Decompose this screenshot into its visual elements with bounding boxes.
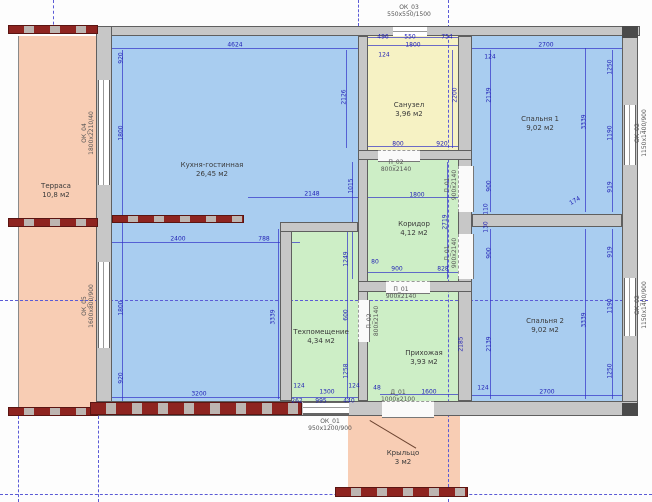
room-hallway [368,292,458,401]
masonry-terrace-top [8,25,98,34]
opening-label: ОК_051600х800/900 [82,284,96,328]
dimension-label: 262 [291,398,302,405]
room-label-bedroom2: Спальня 29,02 м2 [526,317,564,335]
dimension-label: 1300 [319,389,334,396]
dimension-label: 919 [607,181,614,192]
masonry-kitchen-partial [112,215,244,223]
opening-label: ОК_021150х1400/900 [635,109,649,157]
dimension-label: 2139 [486,87,493,102]
dimension-label: 2719 [442,214,449,229]
axis-line [358,0,359,26]
room-label-corridor: Коридор4,12 м2 [398,220,430,238]
dimension-label: 920 [436,141,447,148]
opening-label: ОК_01950х1200/900 [308,419,352,433]
dimension-label: 1258 [343,363,350,378]
dimension-label: 4624 [227,42,242,49]
dimension-label: 1800 [118,300,125,315]
dimension-label: 920 [118,52,125,63]
dimension-label: 2400 [170,236,185,243]
masonry-porch-bottom [335,487,468,497]
dimension-label: 919 [607,246,614,257]
dimension-label: 900 [486,247,493,258]
room-label-porch: Крыльцо3 м2 [387,449,420,467]
dimension-label: 1190 [607,298,614,313]
window-ok04 [98,80,110,185]
dimension-label: 3200 [191,391,206,398]
door-p01-bedroom2 [458,234,474,279]
wall-bedroom-divider [472,214,622,227]
dimension-label: 788 [258,236,269,243]
dimension-label: 496 [377,34,388,41]
dimension-label: 2148 [304,191,319,198]
dimension-label: 130 [483,221,490,232]
dimension-label: 124 [477,385,488,392]
room-label-hallway: Прихожая3,93 м2 [405,349,443,367]
dimension-label: 1800 [409,192,424,199]
dimension-label: 1800 [118,125,125,140]
wall-techroom-left [280,222,292,401]
dimension-label: 110 [483,203,490,214]
dimension-label: 1015 [348,178,355,193]
dimension-line [248,197,358,198]
window-ok05 [98,262,110,348]
dimension-label: 124 [378,52,389,59]
dimension-label: 2185 [458,336,465,351]
axis-line [18,416,19,502]
dimension-label: 800 [392,141,403,148]
opening-label: ОК_041800х2210/40 [82,111,96,155]
dimension-label: 124 [348,383,359,390]
opening-label: П_02800х2140 [367,306,381,336]
dimension-label: 900 [391,266,402,273]
wall-techroom-top [280,222,358,232]
masonry-terrace-middle [8,218,98,227]
room-label-kitchen: Кухня-гостинная26,45 м2 [181,161,244,179]
room-label-techroom: Техпомещение4,34 м2 [293,328,349,346]
dimension-label: 48 [373,385,381,392]
opening-label: П_01900х2140 [445,238,459,268]
dimension-label: 995 [315,398,326,405]
axis-line [0,494,652,495]
dimension-label: 2700 [539,389,554,396]
opening-label: П_01900х2140 [445,170,459,200]
dimension-label: 2700 [538,42,553,49]
dimension-line [112,242,300,243]
dimension-label: 3339 [270,309,277,324]
door-p01-bedroom1 [458,166,474,212]
dimension-label: 2139 [486,336,493,351]
masonry-bottom-left [90,402,302,415]
opening-label: П_02800х2140 [381,160,411,174]
dimension-label: 440 [343,398,354,405]
masonry-terrace-bottom [8,407,98,416]
wall-right [622,26,638,416]
dimension-label: 900 [486,180,493,191]
dimension-label: 600 [343,309,350,320]
wall-corner-bottom-right [622,403,638,416]
opening-label: П_01900х2140 [386,287,416,301]
room-label-bathroom: Санузел3,96 м2 [394,101,424,119]
dimension-label: 80 [371,259,379,266]
dimension-label: 2126 [341,89,348,104]
dimension-label: 1250 [607,59,614,74]
opening-label: ОК_021150х1400/900 [635,281,649,329]
room-label-bedroom1: Спальня 19,02 м2 [521,115,559,133]
dimension-line [122,50,123,401]
floor-plan-canvas: Терраса10,8 м2 Кухня-гостинная26,45 м2 С… [0,0,652,502]
dimension-label: 1800 [405,42,420,49]
dimension-label: 124 [293,383,304,390]
dimension-label: 3339 [581,312,588,327]
axis-line [98,416,99,502]
wall-corner-top-right [622,26,638,38]
dimension-label: 550 [404,34,415,41]
dimension-label: 1249 [343,251,350,266]
dimension-label: 1600 [421,389,436,396]
opening-label: ОК_03550х550/1500 [387,5,431,19]
dimension-label: 1250 [607,363,614,378]
dimension-label: 124 [484,54,495,61]
room-label-terrace: Терраса10,8 м2 [41,182,71,200]
wall-corridor-left [358,36,368,401]
dimension-label: 2200 [452,87,459,102]
wall-top [96,26,640,36]
dimension-label: 1190 [607,125,614,140]
room-bedroom2 [472,227,622,401]
dimension-label: 3339 [581,114,588,129]
dimension-line [585,48,586,212]
dimension-line [278,229,279,399]
dimension-label: 920 [118,372,125,383]
dimension-label: 754 [441,34,452,41]
opening-label: Д_011000х2100 [381,390,415,404]
